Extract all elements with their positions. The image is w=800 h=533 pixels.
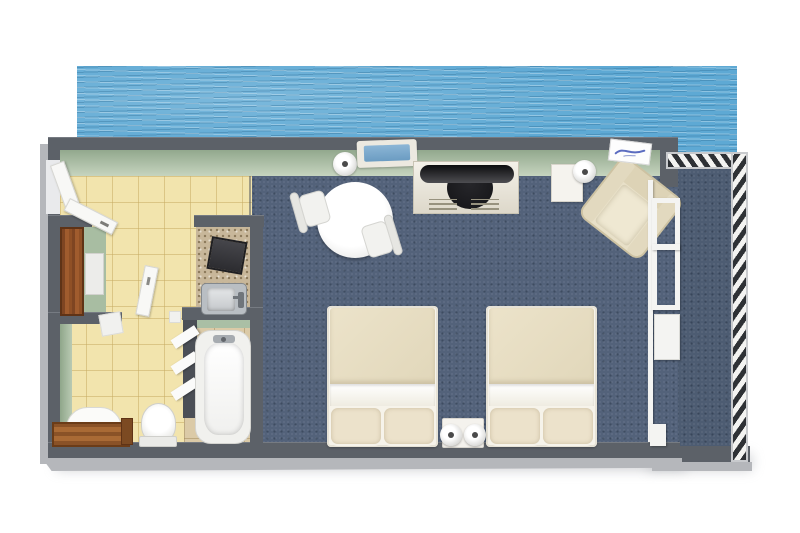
bed-sheet-fold xyxy=(330,384,435,406)
bathtub-basin xyxy=(204,343,244,435)
bathtub xyxy=(195,330,251,444)
tv-screen xyxy=(420,165,514,183)
bathtub-faucet xyxy=(213,335,235,343)
vanity-table-leg xyxy=(121,418,133,445)
divider-wall xyxy=(250,215,263,450)
bed xyxy=(486,306,597,447)
window-glass xyxy=(364,144,411,162)
bedside-lamp xyxy=(464,424,486,446)
bedside-lamp xyxy=(440,424,462,446)
bed-duvet xyxy=(330,308,435,384)
bed-duvet xyxy=(489,308,594,384)
pillow xyxy=(331,408,381,444)
wooden-vanity-table xyxy=(52,422,130,447)
floor-lamp xyxy=(333,152,357,176)
floor-transition-line xyxy=(249,176,251,216)
floor-plan-canvas xyxy=(0,0,800,533)
sink-basin xyxy=(207,288,235,311)
dark-countertop-appliance xyxy=(206,236,247,275)
sliding-door-mullion xyxy=(652,244,680,250)
balcony-railing-right xyxy=(731,152,748,462)
closet-shelf xyxy=(85,253,104,295)
sliding-door-panel xyxy=(654,314,680,360)
sink-faucet xyxy=(238,292,244,308)
bathroom-door-jamb xyxy=(98,311,123,336)
pillow xyxy=(384,408,434,444)
wall-window xyxy=(357,139,418,168)
bathroom-door-jamb xyxy=(169,311,181,323)
console-vent xyxy=(471,199,499,210)
wall-sign-logo xyxy=(608,139,652,166)
toilet-tank xyxy=(139,436,177,447)
bed-sheet-fold xyxy=(489,384,594,406)
logo-swoosh-icon xyxy=(609,140,651,165)
pillow xyxy=(543,408,593,444)
bed xyxy=(327,306,438,447)
console-vent xyxy=(429,199,457,210)
balcony-outer-bevel xyxy=(652,462,752,471)
kitchen-sink xyxy=(201,283,247,315)
table-lamp xyxy=(573,160,596,183)
sliding-door-glass-panel xyxy=(652,198,680,310)
tv-console xyxy=(413,161,519,214)
pillow xyxy=(490,408,540,444)
wooden-wardrobe xyxy=(60,227,84,316)
sliding-door-foot xyxy=(650,424,666,446)
